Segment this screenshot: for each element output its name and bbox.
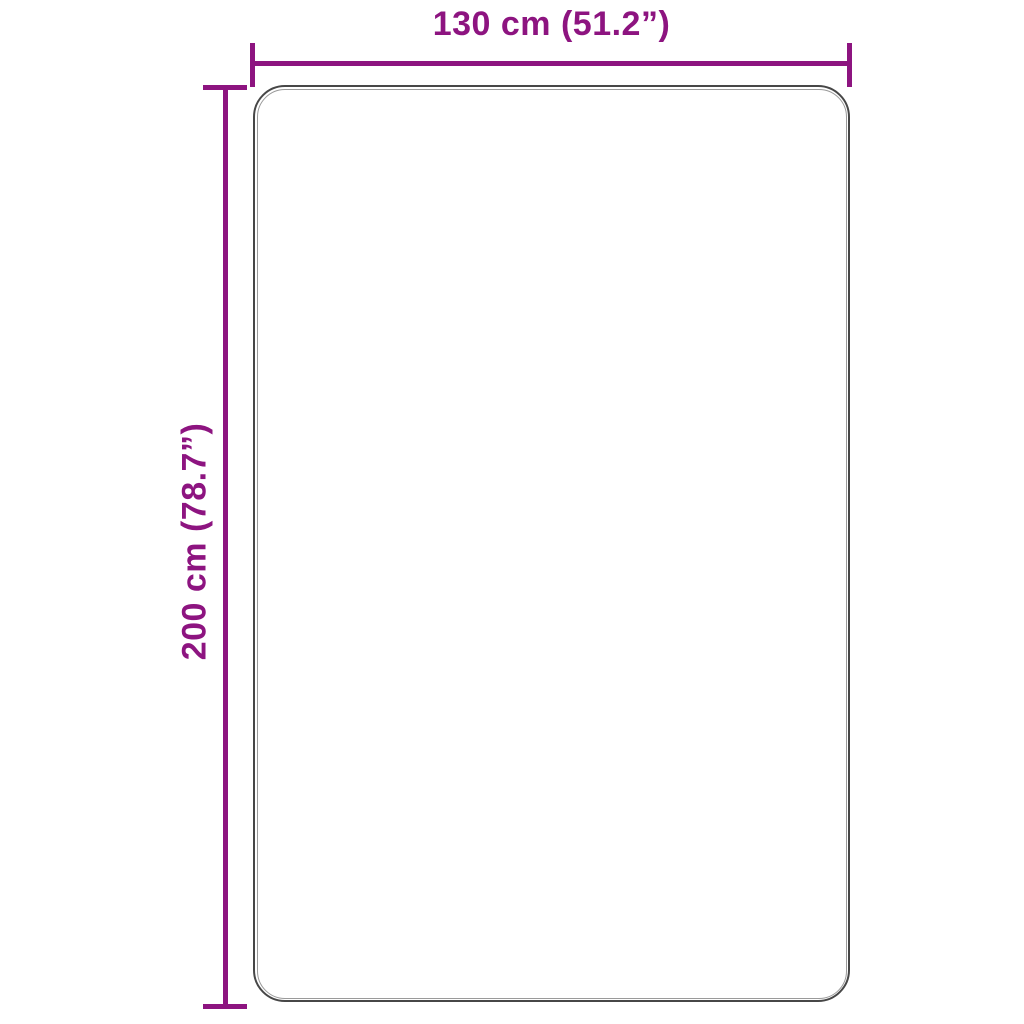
dimension-diagram: 130 cm (51.2”) 200 cm (78.7”) — [0, 0, 1024, 1024]
width-dimension-label: 130 cm (51.2”) — [253, 5, 850, 44]
width-dimension-tick-right — [847, 43, 852, 87]
width-dimension-tick-left — [250, 43, 255, 87]
height-dimension-line — [223, 87, 228, 1006]
height-dimension-tick-bottom — [203, 1004, 247, 1009]
height-dimension-label: 200 cm (78.7”) — [176, 422, 215, 662]
product-outline-inner — [257, 89, 847, 999]
product-outline-outer — [253, 85, 850, 1002]
height-dimension-tick-top — [203, 85, 247, 90]
width-dimension-line — [252, 61, 850, 66]
